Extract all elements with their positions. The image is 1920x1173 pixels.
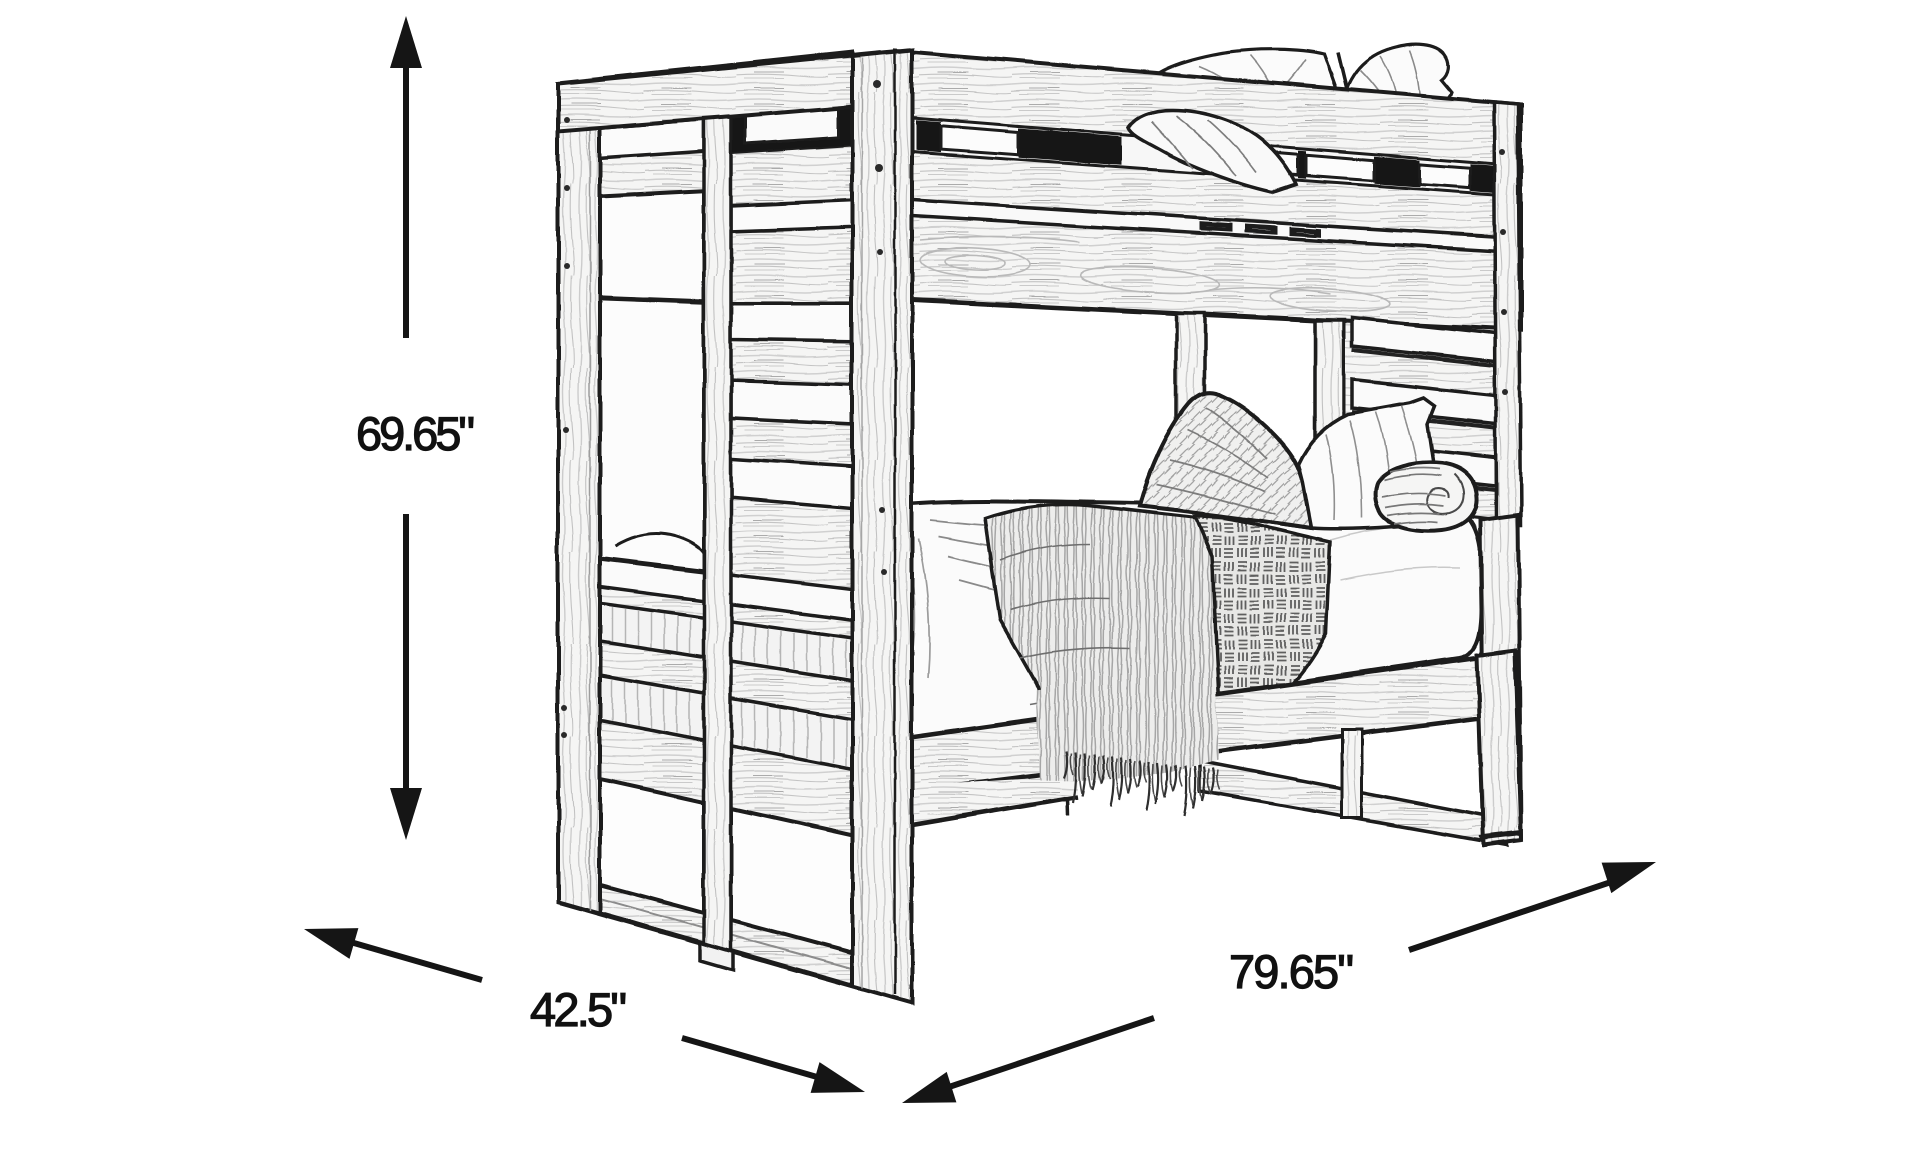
svg-text:79.65": 79.65" [1229, 945, 1354, 998]
svg-text:69.65": 69.65" [356, 407, 475, 460]
svg-text:42.5": 42.5" [530, 983, 627, 1036]
